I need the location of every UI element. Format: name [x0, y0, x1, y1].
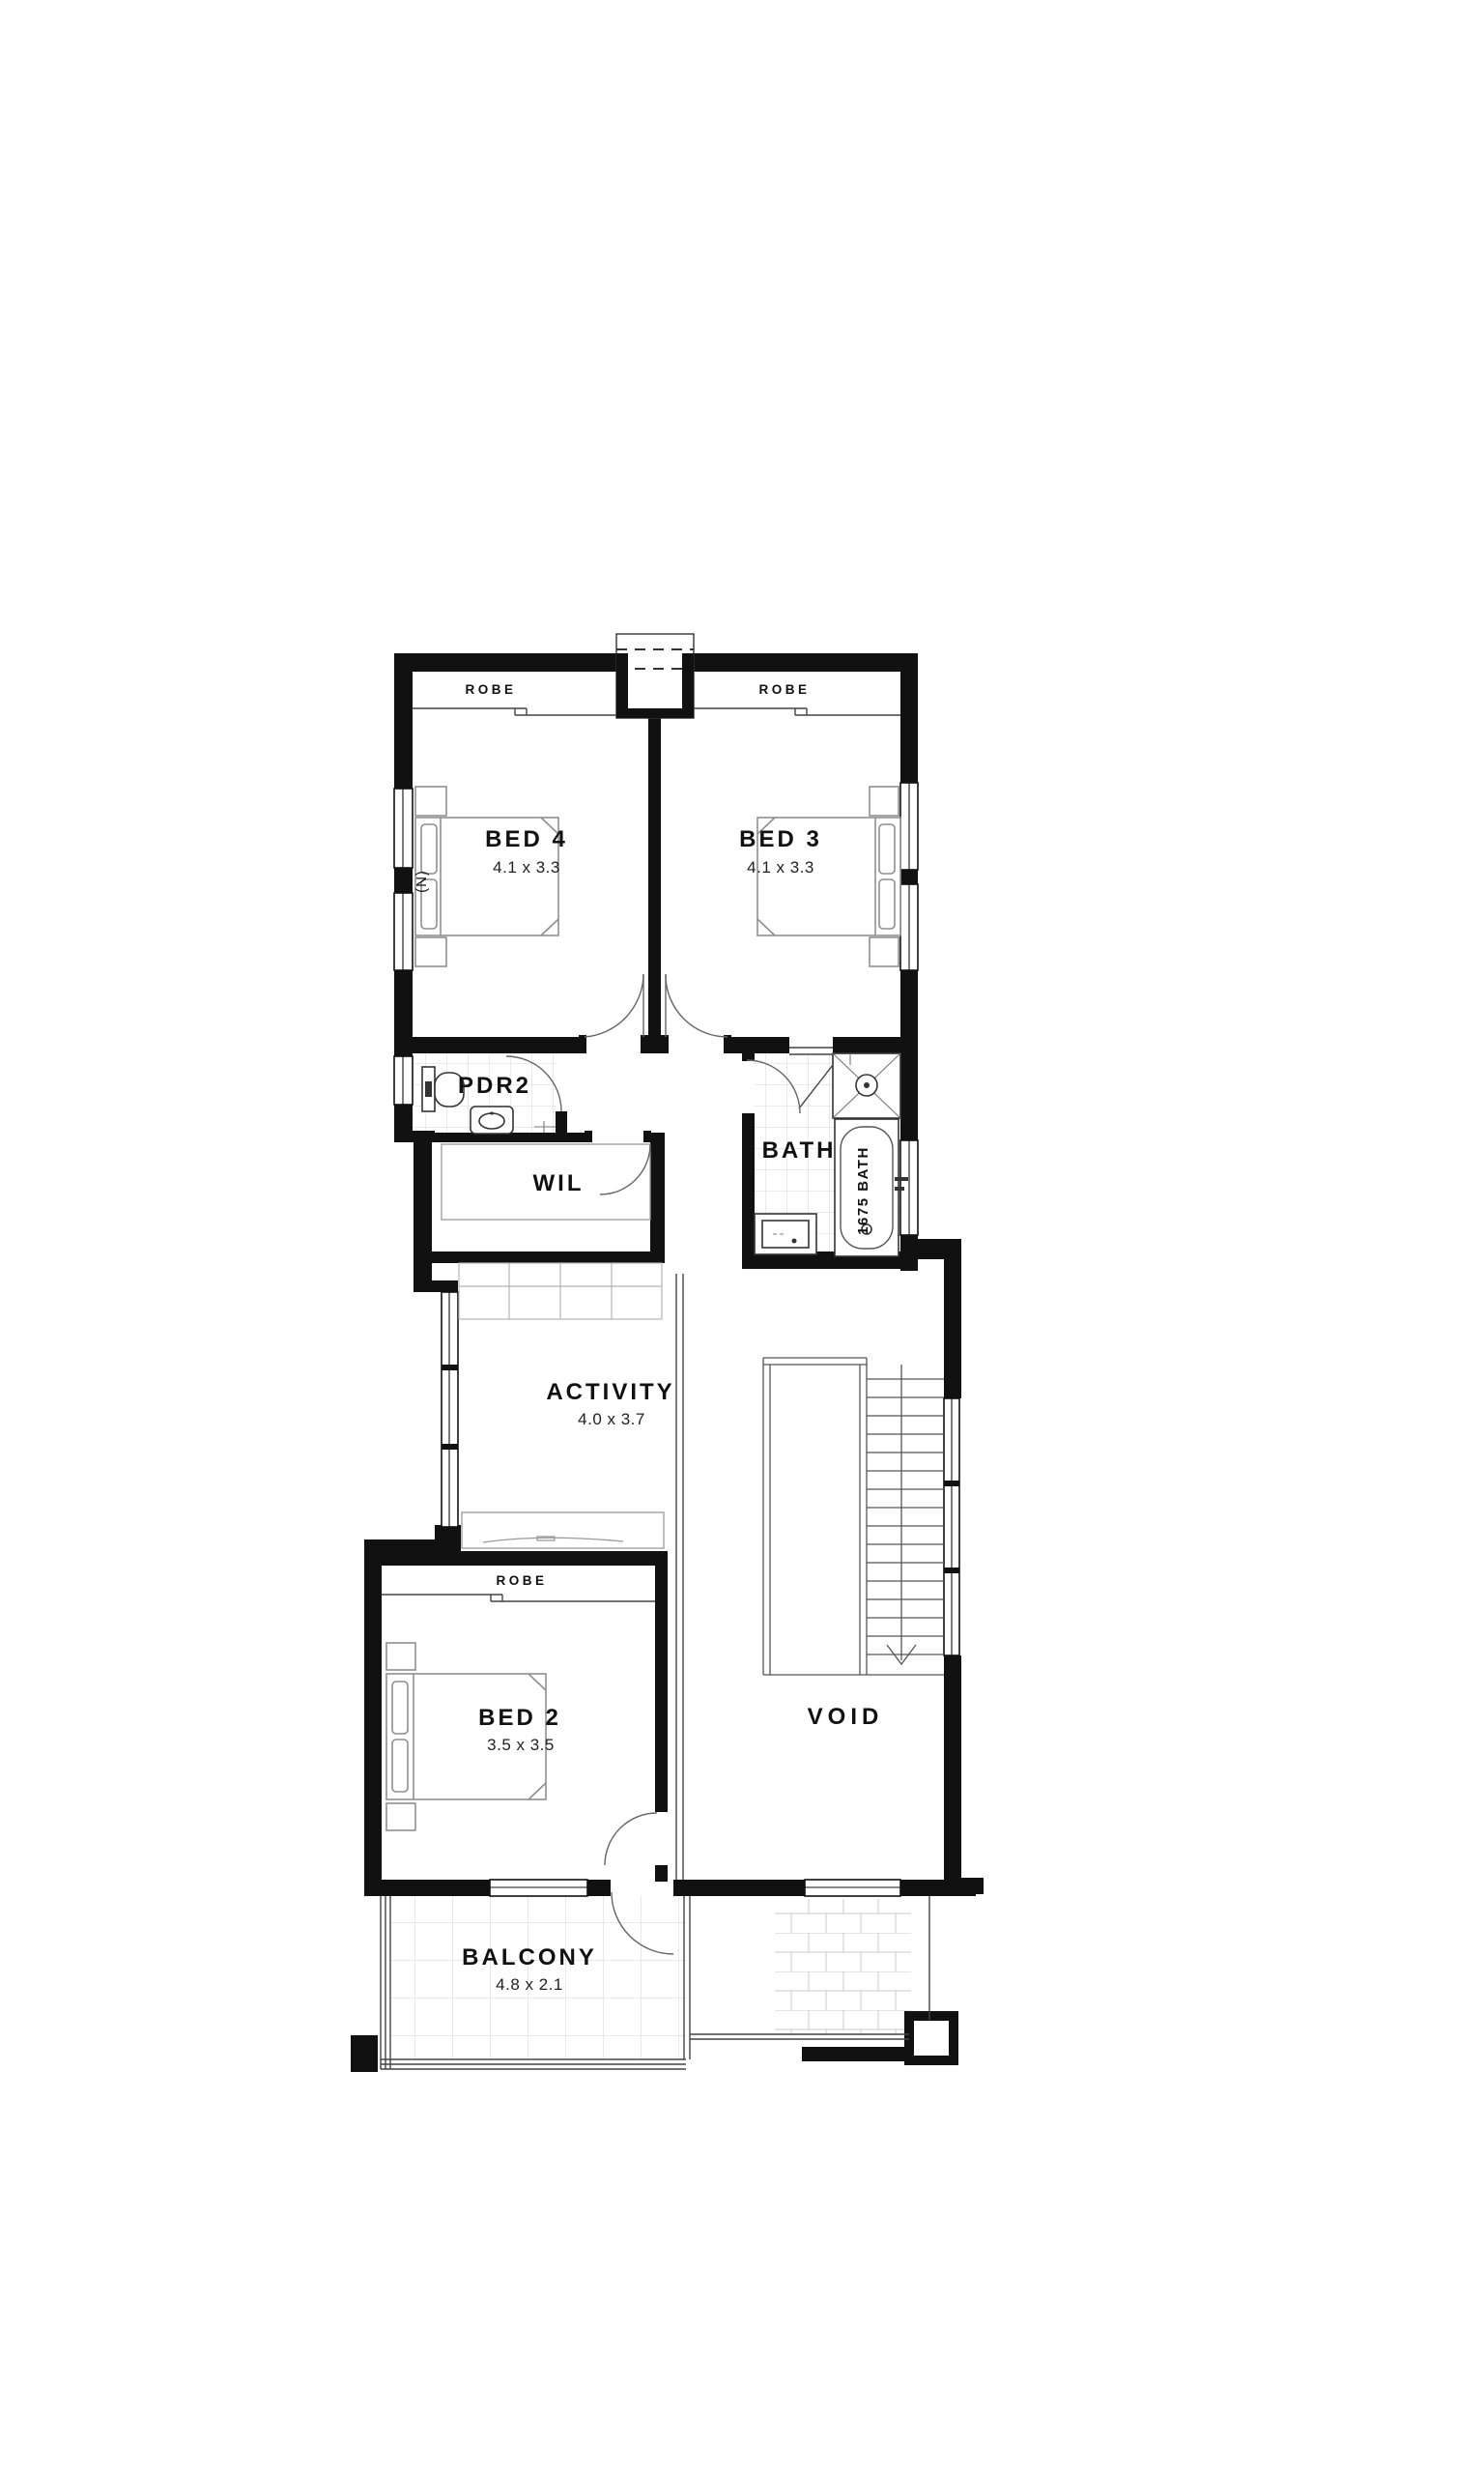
bathtub: [835, 1119, 908, 1256]
bathtub-label: 1675 BATH: [855, 1146, 871, 1235]
void-label: VOID: [808, 1704, 884, 1730]
bed3-window: [900, 783, 918, 870]
floor-plan-page: ROBE ROBE BED 4 4.1 x 3.3 BED 3 4.1 x 3.…: [0, 0, 1484, 2474]
activity-dimensions: 4.0 x 3.7: [578, 1410, 645, 1428]
activity-label: ACTIVITY: [546, 1379, 674, 1405]
robe-label-bed4: ROBE: [465, 682, 516, 697]
balcony-label: BALCONY: [462, 1944, 597, 1971]
pdr2-basin: [471, 1107, 513, 1134]
bed3-label: BED 3: [739, 826, 822, 852]
bath-label: BATH: [762, 1137, 837, 1164]
wil-label: WIL: [533, 1170, 585, 1196]
void-window: [805, 1880, 900, 1896]
bath-vanity: [755, 1214, 816, 1254]
bed4-window: [394, 789, 413, 868]
floor-plan-drawing: ROBE ROBE BED 4 4.1 x 3.3 BED 3 4.1 x 3.…: [0, 0, 1484, 2474]
bed4-window-2: [394, 893, 413, 970]
balcony-dimensions: 4.8 x 2.1: [496, 1975, 563, 1994]
bed4-dimensions: 4.1 x 3.3: [493, 858, 560, 877]
bed3-window-2: [900, 884, 918, 970]
robe-label-bed3: ROBE: [758, 682, 810, 697]
bed4-label: BED 4: [485, 826, 568, 852]
stair-window: [944, 1398, 959, 1655]
pdr2-label: PDR2: [458, 1073, 531, 1099]
robe-label-bed2: ROBE: [496, 1573, 547, 1588]
bed2-window: [490, 1880, 587, 1896]
bed2-dimensions: 3.5 x 3.5: [487, 1736, 555, 1754]
roof-niche: [616, 634, 694, 718]
north-indicator: (N): [414, 870, 430, 893]
bed2-label: BED 2: [478, 1705, 561, 1731]
activity-window: [442, 1292, 458, 1527]
terrace-floor-tiles: [775, 1899, 911, 2034]
bed3-dimensions: 4.1 x 3.3: [747, 858, 814, 877]
pdr2-window: [394, 1056, 413, 1105]
